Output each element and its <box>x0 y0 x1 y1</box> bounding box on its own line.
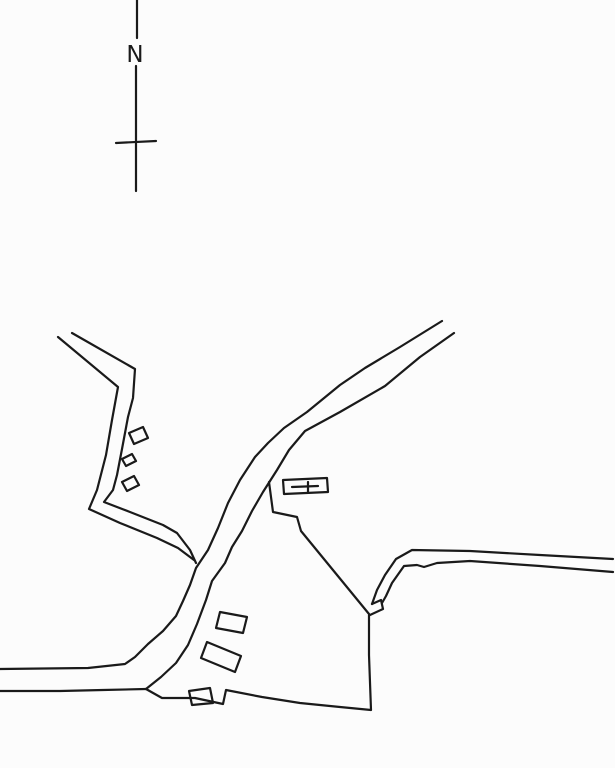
main-road-west-edge <box>0 321 442 669</box>
building-northwest-2 <box>122 454 136 466</box>
field-boundary-south <box>146 615 371 710</box>
building-south-2 <box>201 642 241 672</box>
main-road-east-edge <box>146 333 454 689</box>
churchyard-boundary <box>269 482 369 614</box>
right-road-south-edge <box>382 561 613 603</box>
building-south-1 <box>216 612 247 633</box>
map-linework <box>0 0 613 710</box>
north-label: N <box>126 42 143 68</box>
right-road-north-edge <box>372 550 613 604</box>
building-south-3 <box>189 688 213 705</box>
map-svg: N <box>0 0 615 768</box>
north-crossbar <box>116 141 156 143</box>
map-canvas: N <box>0 0 615 768</box>
building-northwest-1 <box>129 427 148 444</box>
church-cross-horizontal <box>292 486 318 487</box>
building-northwest-3 <box>122 476 139 491</box>
bottom-road-south-edge <box>0 689 146 691</box>
left-road-outer-edge <box>58 337 194 560</box>
